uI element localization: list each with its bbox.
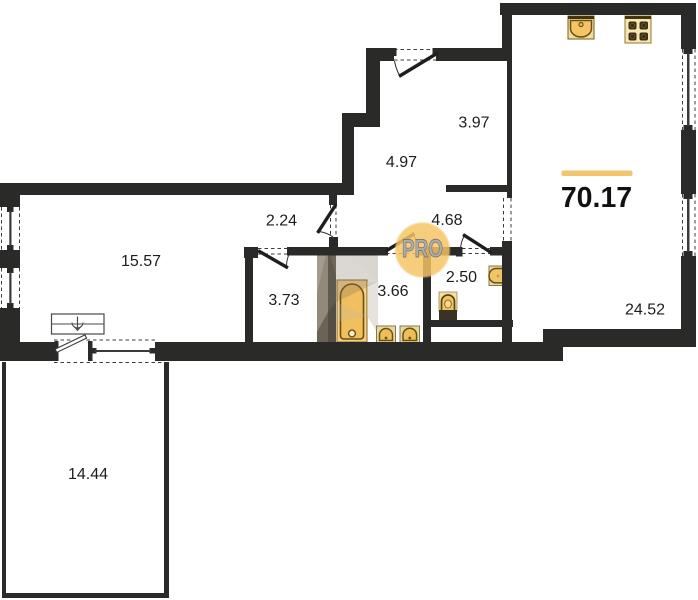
svg-text:15.57: 15.57	[121, 253, 161, 270]
svg-text:4.68: 4.68	[431, 212, 462, 229]
svg-text:4.97: 4.97	[386, 154, 417, 171]
svg-text:3.66: 3.66	[377, 283, 408, 300]
svg-text:3.73: 3.73	[268, 292, 299, 309]
svg-text:2.50: 2.50	[446, 269, 477, 286]
svg-text:24.52: 24.52	[625, 302, 665, 319]
svg-text:3.97: 3.97	[458, 115, 489, 132]
svg-text:PRO: PRO	[402, 235, 443, 263]
svg-text:70.17: 70.17	[561, 182, 632, 214]
svg-text:14.44: 14.44	[68, 466, 108, 483]
svg-text:2.24: 2.24	[266, 213, 297, 230]
